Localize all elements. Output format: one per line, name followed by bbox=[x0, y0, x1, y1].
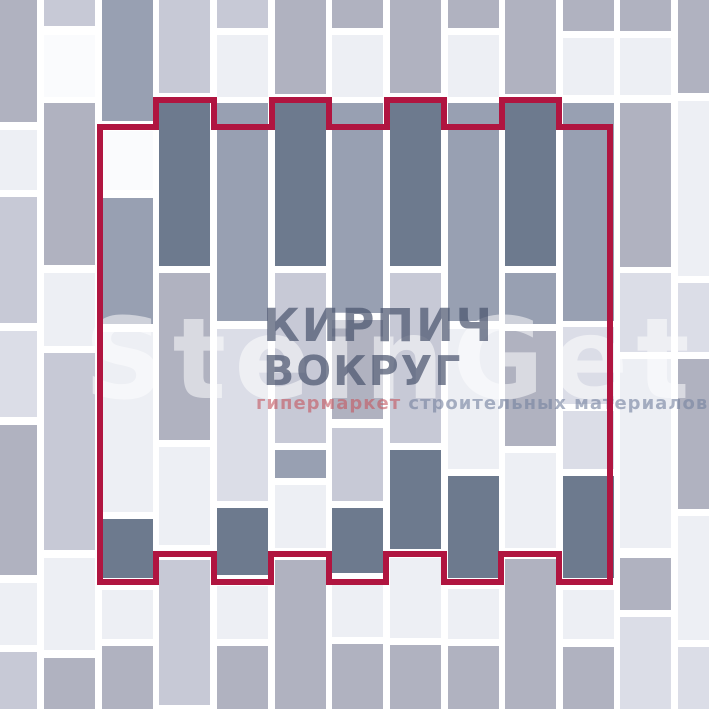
paver-tile bbox=[332, 35, 383, 97]
paver-tile bbox=[275, 450, 326, 478]
watermark-subtitle: гипермаркет строительных материалов bbox=[256, 393, 708, 414]
paver-tile bbox=[44, 0, 95, 26]
paver-tile bbox=[217, 508, 268, 575]
paver-tile bbox=[217, 586, 268, 639]
paver-tile bbox=[448, 646, 499, 709]
paver-tile bbox=[102, 519, 153, 578]
paver-tile bbox=[620, 617, 671, 709]
paver-tile bbox=[0, 130, 37, 190]
paver-tile bbox=[159, 447, 210, 545]
paver-tile bbox=[448, 103, 499, 321]
paver-tile bbox=[332, 584, 383, 637]
paver-tile bbox=[505, 453, 556, 548]
paver-tile bbox=[390, 558, 441, 638]
paver-tile bbox=[275, 0, 326, 94]
paver-tile bbox=[332, 508, 383, 573]
watermark-subtitle-gray: строительных материалов bbox=[408, 393, 708, 414]
paver-tile bbox=[448, 589, 499, 639]
paver-tile bbox=[505, 0, 556, 94]
paver-tile bbox=[0, 0, 37, 122]
paver-tile bbox=[332, 0, 383, 28]
watermark-line1-text: КИРПИЧ bbox=[263, 299, 494, 352]
paving-pattern-canvas: SteinGet КИРПИЧ ВОКРУГ гипермаркет строи… bbox=[0, 0, 709, 709]
paver-tile bbox=[390, 0, 441, 93]
paver-tile bbox=[332, 644, 383, 709]
paver-tile bbox=[620, 0, 671, 31]
watermark-line2-text: ВОКРУГ bbox=[263, 347, 462, 395]
paver-tile bbox=[0, 197, 37, 323]
paver-tile bbox=[563, 647, 614, 709]
paver-tile bbox=[0, 425, 37, 575]
paver-tile bbox=[620, 38, 671, 95]
paver-tile bbox=[44, 103, 95, 265]
paver-tile bbox=[159, 560, 210, 705]
paver-tile bbox=[563, 0, 614, 31]
paver-tile bbox=[275, 485, 326, 548]
paver-tile bbox=[678, 647, 709, 709]
paver-tile bbox=[448, 35, 499, 97]
paver-tile bbox=[620, 103, 671, 267]
paver-tile bbox=[620, 558, 671, 610]
paver-tile bbox=[505, 101, 556, 266]
paver-tile bbox=[390, 450, 441, 549]
paver-tile bbox=[563, 38, 614, 95]
paver-tile bbox=[332, 428, 383, 501]
paver-tile bbox=[102, 0, 153, 121]
paver-tile bbox=[217, 0, 268, 28]
paver-tile bbox=[44, 558, 95, 650]
paver-tile bbox=[390, 645, 441, 709]
paver-tile bbox=[563, 103, 614, 321]
paver-tile bbox=[0, 652, 37, 709]
paver-tile bbox=[275, 101, 326, 266]
paving-pattern-illustration: SteinGet КИРПИЧ ВОКРУГ гипермаркет строи… bbox=[0, 0, 709, 709]
paver-tile bbox=[390, 101, 441, 266]
paver-tile bbox=[44, 658, 95, 709]
watermark-subtitle-red: гипермаркет bbox=[256, 393, 408, 414]
paver-tile bbox=[678, 101, 709, 276]
paver-tile bbox=[448, 476, 499, 578]
paver-tile bbox=[217, 35, 268, 97]
paver-tile bbox=[102, 131, 153, 190]
paver-tile bbox=[505, 559, 556, 709]
paver-tile bbox=[275, 560, 326, 709]
paver-tile bbox=[563, 590, 614, 639]
paver-tile bbox=[102, 646, 153, 709]
paver-tile bbox=[563, 476, 614, 578]
paver-tile bbox=[217, 646, 268, 709]
paver-tile bbox=[217, 103, 268, 321]
paver-tile bbox=[159, 0, 210, 93]
watermark: SteinGet КИРПИЧ ВОКРУГ гипермаркет строи… bbox=[84, 295, 708, 425]
paver-tile bbox=[159, 101, 210, 266]
paver-tile bbox=[332, 103, 383, 313]
paver-tile bbox=[44, 35, 95, 97]
paver-tile bbox=[0, 583, 37, 645]
paver-tile bbox=[448, 0, 499, 28]
paver-tile bbox=[102, 590, 153, 639]
paver-tile bbox=[678, 516, 709, 640]
paver-tile bbox=[678, 0, 709, 93]
paver-tile bbox=[0, 331, 37, 417]
